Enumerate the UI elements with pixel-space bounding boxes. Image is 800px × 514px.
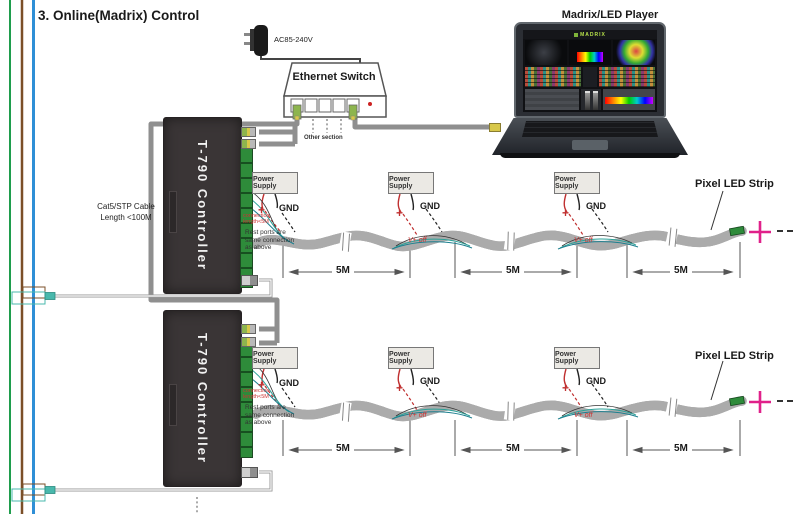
laptop-base (492, 118, 688, 155)
preview-panel-center (569, 40, 611, 65)
segment-length-label: 5M (332, 265, 354, 276)
control-panel-left (525, 89, 579, 110)
laptop-label: Madrix/LED Player (540, 9, 680, 21)
controller-2-lcd (169, 384, 177, 426)
power-supply-label: Power Supply (555, 351, 599, 365)
ac-adapter-icon (244, 25, 268, 56)
controller-2-ethernet-port-2 (241, 337, 256, 347)
v-plus-off-label: V+ off (408, 412, 426, 419)
led-strip-row-2 (252, 361, 793, 422)
laptop-keyboard (522, 121, 658, 137)
laptop-ethernet-connector (489, 123, 501, 132)
crossfader-panel (583, 67, 597, 87)
controller-1-lcd (169, 191, 177, 233)
plus-label: + (562, 381, 569, 395)
segment-length-label: 5M (502, 265, 524, 276)
controller-1-output-connector (241, 275, 258, 286)
laptop-bottom-edge (500, 153, 680, 158)
plus-label: + (396, 206, 403, 220)
power-supply-label: Power Supply (389, 351, 433, 365)
effect-matrix-left (525, 67, 581, 87)
segment-length-label: 5M (502, 443, 524, 454)
gnd-label: GND (279, 203, 299, 213)
controller-2-name: T-790 Controller (195, 333, 210, 464)
preview-panel-left (525, 40, 567, 65)
power-supply-label: Power Supply (253, 176, 297, 190)
wiring-diagram-canvas (0, 0, 800, 514)
madrix-logo-icon (574, 33, 578, 37)
page-title: 3. Online(Madrix) Control (38, 8, 199, 23)
madrix-software-screen: MADRIX (523, 30, 657, 112)
gnd-label: GND (420, 376, 440, 386)
power-supply-label: Power Supply (253, 351, 297, 365)
wiring-diagram-page: { "title": "3. Online(Madrix) Control", … (0, 0, 800, 514)
power-supply-label: Power Supply (555, 176, 599, 190)
gnd-label: GND (420, 201, 440, 211)
segment-length-label: 5M (670, 265, 692, 276)
gnd-label: GND (279, 378, 299, 388)
power-supply-box: Power Supply (554, 347, 600, 369)
madrix-logo-text: MADRIX (580, 32, 606, 38)
v-plus-off-label: V+ off (574, 237, 592, 244)
controller-1: T-790 Controller (163, 117, 242, 294)
pixel-led-strip-label: Pixel LED Strip (695, 350, 774, 362)
rest-ports-note: Rest ports aresame connectionas above (245, 229, 294, 252)
controller-1-ethernet-port-2 (241, 139, 256, 149)
v-plus-off-label: V+ off (574, 412, 592, 419)
ethernet-switch-label: Ethernet Switch (287, 71, 381, 83)
other-section-label: Other section (304, 135, 343, 141)
cat5-note-line1: Cat5/STP Cable (82, 202, 170, 213)
controller-1-name: T-790 Controller (195, 140, 210, 271)
lead-wire-note: connectionlength<5M (243, 213, 270, 225)
lead-wire-note: connectionlength<5M (243, 388, 270, 400)
v-plus-off-label: V+ off (408, 237, 426, 244)
preview-panel-right (613, 40, 655, 65)
gnd-label: GND (586, 201, 606, 211)
controller-1-ethernet-port-1 (241, 127, 256, 137)
controller-2-output-connector (241, 467, 258, 478)
bus-lines (10, 0, 34, 514)
laptop-screen-bezel: MADRIX (514, 22, 666, 118)
power-supply-box: Power Supply (388, 172, 434, 194)
pixel-led-strip-label: Pixel LED Strip (695, 178, 774, 190)
gnd-label: GND (586, 376, 606, 386)
power-supply-box: Power Supply (554, 172, 600, 194)
led-strip-row-1 (252, 191, 793, 252)
cat5-note-line2: Length <100M (82, 213, 170, 224)
plus-label: + (562, 206, 569, 220)
madrix-logo-bar: MADRIX (523, 30, 657, 39)
fader-panel (581, 89, 601, 110)
rest-ports-note: Rest ports aresame connectionas above (245, 404, 294, 427)
power-supply-box: Power Supply (388, 347, 434, 369)
laptop-touchpad (572, 140, 608, 150)
control-panel-right (603, 89, 655, 110)
segment-length-label: 5M (670, 443, 692, 454)
cat5-cable-note: Cat5/STP Cable Length <100M (82, 202, 170, 223)
segment-length-label: 5M (332, 443, 354, 454)
switch-power-led (368, 102, 372, 106)
adapter-cable (261, 55, 360, 63)
plus-label: + (396, 381, 403, 395)
effect-matrix-right (599, 67, 655, 87)
power-supply-box: Power Supply (252, 172, 298, 194)
adapter-voltage-label: AC85-240V (274, 35, 313, 44)
controller-2-ethernet-port-1 (241, 324, 256, 334)
power-supply-box: Power Supply (252, 347, 298, 369)
controller-2: T-790 Controller (163, 310, 242, 487)
power-supply-label: Power Supply (389, 176, 433, 190)
